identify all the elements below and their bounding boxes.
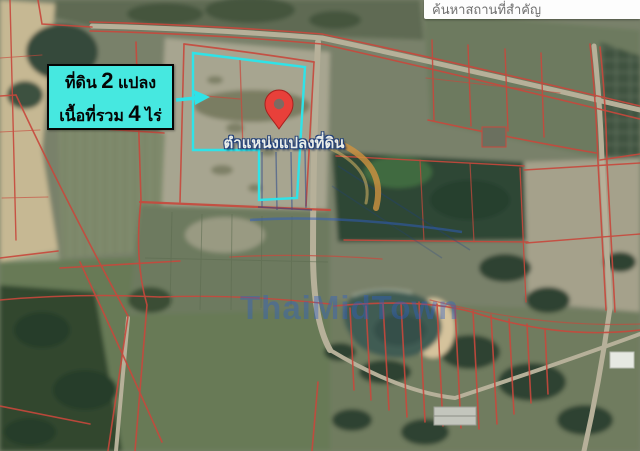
search-placeholder: ค้นหาสถานที่สำคัญ [432,0,541,20]
callout-line-1: ที่ดิน 2 แปลง [65,64,156,97]
pin-caption: ตำแหน่งแปลงที่ดิน [216,131,352,155]
land-callout: ที่ดิน 2 แปลง เนื้อที่รวม 4 ไร่ [47,64,174,130]
search-input[interactable]: ค้นหาสถานที่สำคัญ [424,0,640,19]
callout-line-2: เนื้อที่รวม 4 ไร่ [59,97,161,130]
map-screenshot: ThaiMidTown ตำแหน่งแปลงที่ดิน ที่ดิน 2 แ… [0,0,640,451]
